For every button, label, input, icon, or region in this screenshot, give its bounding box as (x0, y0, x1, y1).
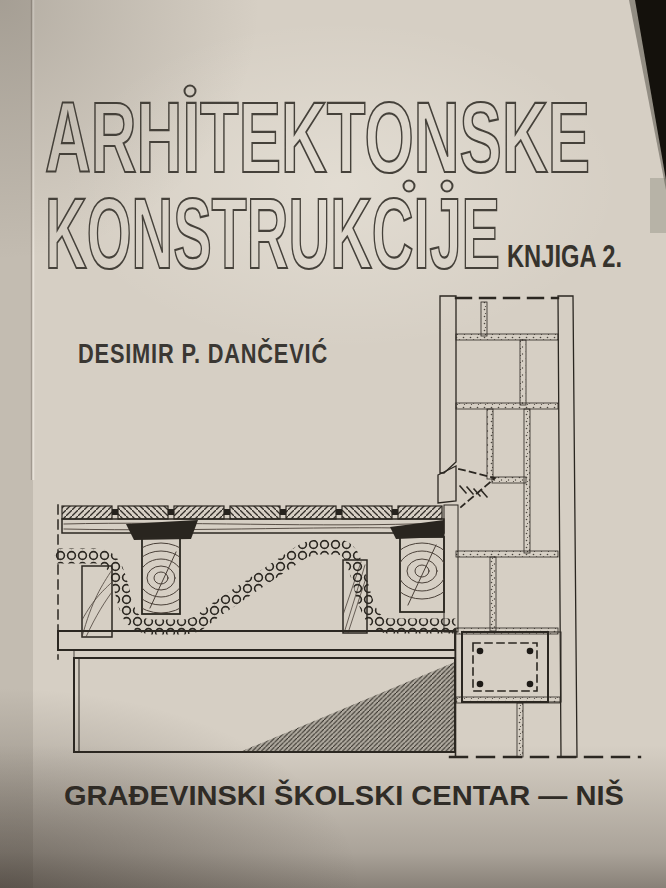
author-name: DESIMIR P. DANČEVIĆ (78, 338, 328, 369)
book-cover: ARHITEKTONSKE KONSTRUKCIJE KNJIGA 2. DES… (0, 0, 666, 888)
book-cover-photo: ARHITEKTONSKE KONSTRUKCIJE KNJIGA 2. DES… (0, 0, 666, 888)
edition-label: KNJIGA 2. (507, 239, 622, 274)
roof-battens (62, 506, 442, 519)
